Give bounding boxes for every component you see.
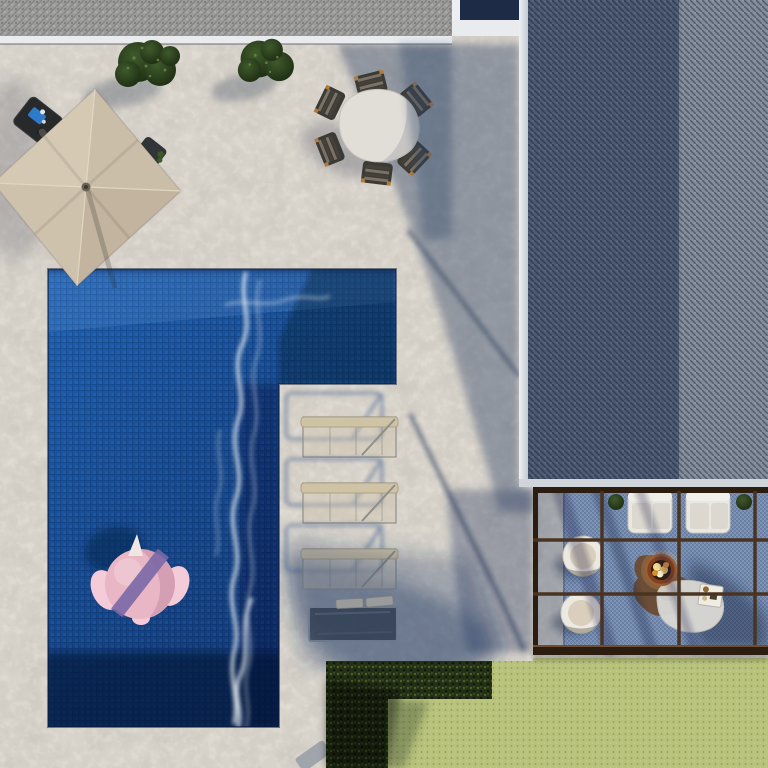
armchair-cushion: [711, 503, 728, 529]
potted-plant: [608, 494, 624, 510]
pergola-lounge: [533, 487, 768, 655]
umbrella-hub-center: [84, 185, 88, 189]
roof-fascia-strip: [0, 36, 452, 44]
pergola-top-beam: [533, 487, 768, 493]
roof-shingle-texture: [528, 0, 768, 487]
roof-gutter: [519, 0, 528, 487]
white-armchair: [686, 492, 730, 533]
skylight-dark: [460, 0, 519, 20]
roof-bottom-fascia: [519, 479, 768, 487]
pergola-left-beam: [533, 491, 538, 649]
bush-foliage: [115, 40, 180, 87]
potted-plant: [736, 494, 752, 510]
corner-white-band: [452, 20, 519, 36]
lounger-backrest-bar: [301, 417, 398, 427]
garden: [326, 652, 768, 768]
armchair-back: [628, 492, 672, 501]
fascia-shadow-line: [0, 43, 452, 45]
gravel-texture: [0, 0, 452, 36]
armchair-cushion: [690, 503, 709, 529]
dining-chair: [361, 160, 393, 185]
upper-roof-strip: [0, 0, 519, 45]
lounger-backrest-bar: [301, 483, 398, 493]
pool-terrace-render: [0, 0, 768, 768]
main-roof: [519, 0, 768, 487]
armchair-back: [686, 492, 730, 501]
